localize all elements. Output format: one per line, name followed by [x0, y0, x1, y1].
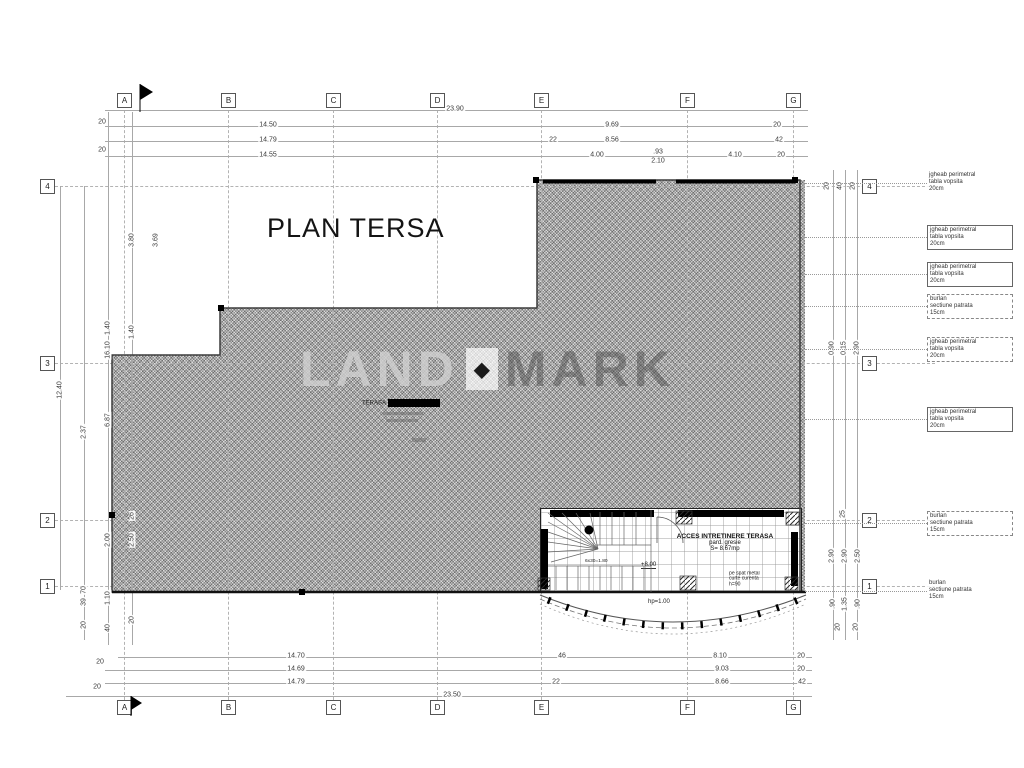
- dimension-label: 20: [853, 622, 860, 632]
- leader-line: [805, 523, 927, 524]
- grid-column-label-bottom: A: [117, 700, 132, 715]
- dimension-label: 0.15: [841, 340, 848, 356]
- annotation-text: jgheab perimetral tabla vopsita 20cm: [927, 171, 1011, 194]
- survey-flag-icon: [140, 84, 153, 112]
- grid-column-line: [687, 100, 688, 700]
- dimension-label: 14.55: [258, 152, 278, 159]
- leader-line: [805, 306, 927, 307]
- dimension-label: 20: [97, 119, 107, 126]
- leader-line: [805, 591, 927, 592]
- dimension-label: 1.35: [842, 596, 849, 612]
- dimension-label: 39: [81, 597, 88, 607]
- dim-chain-bottom-2: [105, 670, 812, 671]
- grid-row-line: [55, 186, 935, 187]
- dimension-label: 14.50: [258, 122, 278, 129]
- illegible-text-smudge: [412, 438, 426, 442]
- dimension-label: 3.80: [129, 232, 136, 248]
- dimension-label: 2.90: [854, 340, 861, 356]
- dimension-label: 8.10: [712, 653, 728, 660]
- grid-column-label-top: F: [680, 93, 695, 108]
- grid-column-label-top: G: [786, 93, 801, 108]
- grid-row-label-left: 2: [40, 513, 55, 528]
- grid-column-label-bottom: D: [430, 700, 445, 715]
- dimension-label: 4.00: [589, 152, 605, 159]
- dimension-label: 2.90: [829, 548, 836, 564]
- survey-flag-icon: [131, 696, 142, 716]
- leader-line: [805, 274, 927, 275]
- dim-chain-right-1: [833, 170, 834, 640]
- balcony-balusters: [548, 600, 798, 626]
- dimension-label: 42: [774, 137, 784, 144]
- balcony-arc-outer: [540, 604, 806, 634]
- dimension-label: 1.40: [129, 324, 136, 340]
- floor-plan-page: A A B B C C D D E E F F G G: [0, 0, 1024, 768]
- dimension-label: 14.79: [286, 679, 306, 686]
- grid-row-label-right: 3: [862, 356, 877, 371]
- dimension-label: 3.69: [153, 232, 160, 248]
- dimension-label: 1.10: [105, 590, 112, 606]
- leader-line: [805, 419, 927, 420]
- black-square-marker: [533, 177, 539, 183]
- grid-row-label-right: 4: [862, 179, 877, 194]
- dimension-label: 14.79: [258, 137, 278, 144]
- balcony-arc-dashed: [540, 599, 806, 628]
- redacted-bar: [388, 399, 440, 407]
- annotation-text: burlan sectiune patrata 15cm: [927, 294, 1013, 319]
- dimension-label: .93: [652, 149, 664, 156]
- dimension-label: 0.90: [829, 340, 836, 356]
- annotation-text: burlan sectiune patrata 15cm: [927, 511, 1013, 536]
- dimension-label: 40: [105, 623, 112, 633]
- grid-column-label-bottom: F: [680, 700, 695, 715]
- dimension-label: 20: [772, 122, 782, 129]
- annotation-text: jgheab perimetral tabla vopsita 20cm: [927, 337, 1013, 362]
- dim-chain-left-2: [84, 186, 85, 640]
- dimension-label: 2.10: [650, 158, 666, 165]
- annotation-text: jgheab perimetral tabla vopsita 20cm: [927, 407, 1013, 432]
- terasa-label-text: TERASA: [362, 401, 386, 407]
- balcony-arc: [540, 595, 806, 622]
- dim-chain-left-3: [108, 112, 109, 645]
- level-marker: +8.00: [641, 562, 656, 569]
- leader-line: [805, 183, 927, 184]
- grid-column-line: [793, 100, 794, 700]
- dimension-label: 16.10: [105, 340, 112, 360]
- grid-column-line: [124, 100, 125, 700]
- dimension-label: 9.69: [604, 122, 620, 129]
- dimension-label: 26: [129, 511, 136, 521]
- dimension-label: 14.70: [286, 653, 306, 660]
- parapet-height-label: hp=1.00: [648, 599, 670, 605]
- dim-chain-bottom-3: [105, 683, 812, 684]
- annotation-text: jgheab perimetral tabla vopsita 20cm: [927, 225, 1013, 250]
- dim-chain-right-2: [845, 170, 846, 640]
- dimension-label: 23.90: [445, 106, 465, 113]
- dimension-label: 23.50: [442, 692, 462, 699]
- grid-row-label-right: 2: [862, 513, 877, 528]
- room-area: S= 8.67mp: [653, 546, 797, 552]
- grid-column-label-top: A: [117, 93, 132, 108]
- dimension-label: 8.56: [604, 137, 620, 144]
- grid-column-label-bottom: C: [326, 700, 341, 715]
- grid-row-line: [55, 586, 935, 587]
- dimension-label: 42: [797, 679, 807, 686]
- leader-line: [805, 237, 927, 238]
- annotation-text: burlan sectiune patrata 15cm: [927, 579, 1011, 602]
- dimension-label: 2.50: [855, 548, 862, 564]
- dimension-label: 20: [796, 653, 806, 660]
- dim-chain-right-3: [857, 170, 858, 640]
- dimension-label: 20: [92, 684, 102, 691]
- grid-row-label-left: 1: [40, 579, 55, 594]
- watermark-text-left: LAND: [300, 340, 459, 398]
- dim-chain-top-2: [105, 126, 808, 127]
- access-room: ACCES INTRETINERE TERASA pard. gresie S=…: [540, 508, 802, 592]
- landmark-watermark: LAND ◆ MARK: [300, 340, 675, 398]
- dimension-label: 20: [97, 147, 107, 154]
- black-square-marker: [299, 589, 305, 595]
- dimension-label: 2.50: [129, 532, 136, 548]
- black-square-marker: [792, 177, 798, 183]
- dimension-label: 20: [129, 615, 136, 625]
- dim-chain-left-4: [132, 112, 133, 645]
- dim-chain-bottom-1: [118, 657, 812, 658]
- grid-column-label-top: D: [430, 93, 445, 108]
- page-title: PLAN TERSA: [267, 213, 445, 244]
- room-title: ACCES INTRETINERE TERASA: [653, 533, 797, 540]
- grid-column-label-top: B: [221, 93, 236, 108]
- watermark-text-right: MARK: [505, 340, 675, 398]
- dimension-label: 9.03: [714, 666, 730, 673]
- dimension-label: .90: [830, 598, 837, 610]
- stair-note: 6x30=1.80: [585, 559, 608, 564]
- dimension-label: 12.40: [57, 380, 64, 400]
- dimension-label: 2.37: [81, 424, 88, 440]
- dimension-label: .90: [855, 598, 862, 610]
- grid-column-line: [333, 100, 334, 700]
- grid-column-line: [228, 100, 229, 700]
- dimension-label: 4.10: [727, 152, 743, 159]
- dimension-label: 1.40: [105, 320, 112, 336]
- dimension-label: 20: [95, 659, 105, 666]
- dimension-label: 20: [835, 622, 842, 632]
- dimension-label: 22: [548, 137, 558, 144]
- black-square-marker: [109, 512, 115, 518]
- dimension-label: 22: [551, 679, 561, 686]
- grid-row-label-left: 4: [40, 179, 55, 194]
- terasa-label: TERASA: [362, 399, 440, 407]
- diamond-icon: ◆: [466, 348, 498, 390]
- dimension-label: 20: [81, 620, 88, 630]
- dimension-label: 25: [840, 509, 847, 519]
- dimension-label: 14.69: [286, 666, 306, 673]
- room-note: pe spat metal curte curenta h=90: [729, 571, 760, 587]
- dimension-label: 2.90: [842, 548, 849, 564]
- grid-column-label-bottom: E: [534, 700, 549, 715]
- illegible-text-smudge: [386, 419, 418, 422]
- dim-chain-top-3: [105, 141, 808, 142]
- grid-column-line: [541, 100, 542, 700]
- illegible-text-smudge: [383, 412, 423, 415]
- grid-column-label-top: E: [534, 93, 549, 108]
- leader-line: [805, 349, 927, 350]
- grid-column-label-bottom: G: [786, 700, 801, 715]
- dimension-label: 70: [81, 585, 88, 595]
- dimension-label: 20: [776, 152, 786, 159]
- dimension-label: 46: [557, 653, 567, 660]
- dimension-label: 20: [796, 666, 806, 673]
- grid-row-label-left: 3: [40, 356, 55, 371]
- dim-chain-bottom-4: [66, 696, 812, 697]
- dimension-label: 8.66: [714, 679, 730, 686]
- dimension-label: 6.87: [105, 412, 112, 428]
- grid-column-label-top: C: [326, 93, 341, 108]
- black-square-marker: [218, 305, 224, 311]
- dimension-label: 2.00: [105, 532, 112, 548]
- grid-column-label-bottom: B: [221, 700, 236, 715]
- annotation-text: jgheab perimetral tabla vopsita 20cm: [927, 262, 1013, 287]
- dim-chain-top-4: [105, 156, 808, 157]
- grid-row-line: [55, 520, 935, 521]
- room-text-block: ACCES INTRETINERE TERASA pard. gresie S=…: [653, 533, 797, 552]
